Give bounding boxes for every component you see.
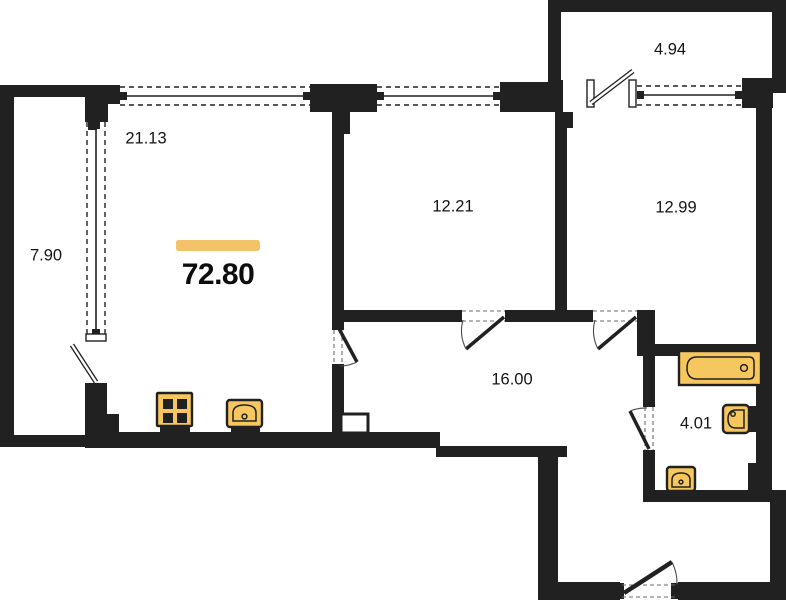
label-balcony-top-area: 4.94 bbox=[654, 41, 686, 60]
bathtub-icon bbox=[679, 351, 761, 385]
floor-plan: 7.90 21.13 4.94 12.21 12.99 16.00 4.01 7… bbox=[0, 0, 786, 600]
label-total-area: 72.80 bbox=[182, 258, 255, 292]
washbasin-icon bbox=[723, 405, 762, 433]
door-room-right bbox=[593, 311, 637, 349]
label-balcony-left-area: 7.90 bbox=[30, 247, 62, 266]
floor-plan-drawing bbox=[0, 0, 786, 600]
label-bathroom-area: 4.01 bbox=[680, 415, 712, 434]
toilet-icon bbox=[667, 467, 695, 494]
balcony-door-left bbox=[72, 334, 106, 382]
balcony-door-top bbox=[587, 71, 636, 107]
label-room-right-area: 12.99 bbox=[655, 199, 696, 218]
label-living-area: 21.13 bbox=[125, 130, 166, 149]
window-balcony-left bbox=[87, 122, 105, 336]
label-room-mid-area: 12.21 bbox=[432, 198, 473, 217]
total-area-highlight-bar bbox=[176, 240, 260, 251]
door-living-hall bbox=[334, 325, 357, 366]
window-room-mid bbox=[377, 87, 500, 105]
kitchen-sink-icon bbox=[227, 400, 262, 433]
walls bbox=[0, 0, 786, 600]
label-hall-area: 16.00 bbox=[491, 371, 532, 390]
door-bathroom bbox=[630, 407, 653, 450]
door-room-mid bbox=[462, 311, 505, 349]
stove-icon bbox=[157, 393, 192, 433]
window-living bbox=[120, 87, 310, 105]
vent-shaft bbox=[341, 414, 368, 433]
window-room-right bbox=[637, 86, 742, 105]
door-entry bbox=[622, 562, 677, 597]
